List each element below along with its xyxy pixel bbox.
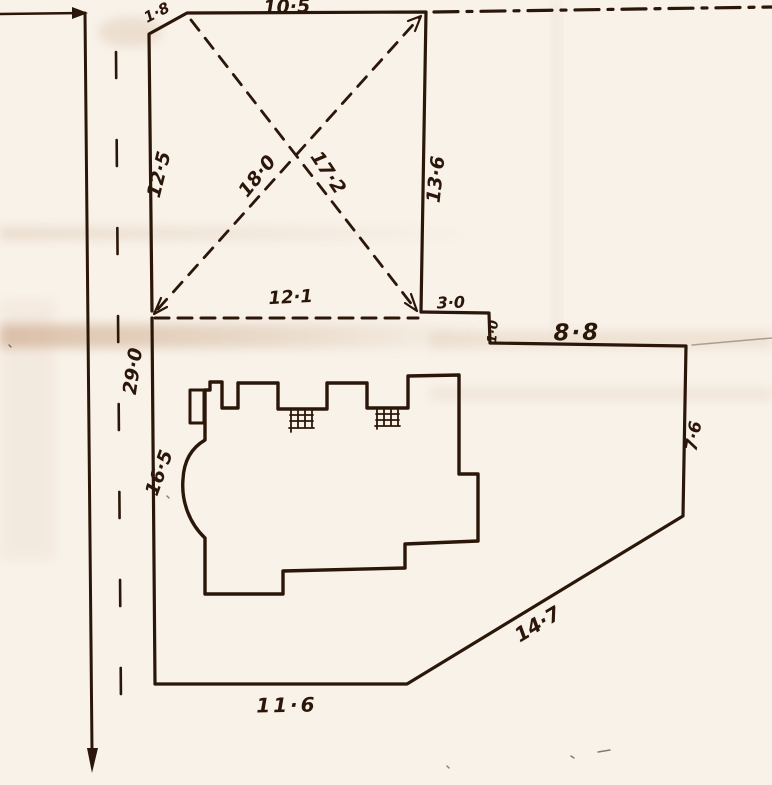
paper-smudge <box>0 300 55 560</box>
road-top-line <box>0 13 83 14</box>
dim-label-step-1-0: 1·0 <box>485 320 502 344</box>
paper-crease <box>552 0 561 330</box>
dim-label-north-boundary: 8·8 <box>553 320 600 347</box>
plan-drawing: 1·8 10·5 12·5 18·0 17·2 13·6 12·1 3·0 1·… <box>0 0 772 785</box>
paper-crease <box>0 227 480 240</box>
dim-label-top-width: 10·5 <box>263 0 311 19</box>
paper-crease <box>430 388 772 400</box>
site-plan-sketch: 1·8 10·5 12·5 18·0 17·2 13·6 12·1 3·0 1·… <box>0 0 772 785</box>
paper-crease <box>0 324 490 348</box>
dim-label-offset-3-0: 3·0 <box>436 293 465 313</box>
dim-label-upper-bottom: 12·1 <box>268 286 313 309</box>
dim-label-south-side: 11·6 <box>256 692 318 717</box>
